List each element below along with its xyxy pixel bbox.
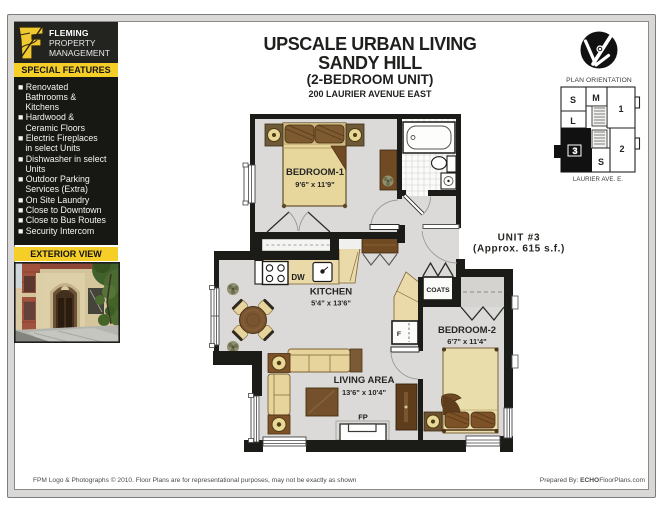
svg-text:PLAN ORIENTATION: PLAN ORIENTATION	[566, 77, 632, 84]
svg-text:F: F	[397, 331, 401, 338]
svg-text:LIVING AREA: LIVING AREA	[334, 375, 395, 386]
svg-text:1: 1	[618, 104, 623, 114]
svg-text:LAURIER AVE. E.: LAURIER AVE. E.	[573, 176, 623, 183]
svg-text:2: 2	[619, 144, 624, 154]
svg-text:S: S	[570, 95, 576, 105]
svg-text:DW: DW	[291, 273, 305, 282]
svg-text:6'7" x 11'4": 6'7" x 11'4"	[447, 337, 487, 346]
svg-text:3: 3	[572, 146, 577, 156]
svg-text:M: M	[592, 93, 600, 103]
svg-text:FP: FP	[358, 413, 368, 422]
svg-text:5'4" x 13'6": 5'4" x 13'6"	[311, 299, 351, 308]
svg-text:9'6" x 11'9": 9'6" x 11'9"	[295, 180, 335, 189]
svg-text:13'6" x 10'4": 13'6" x 10'4"	[342, 388, 386, 397]
svg-text:S: S	[598, 157, 604, 167]
svg-text:BEDROOM-2: BEDROOM-2	[438, 325, 496, 336]
svg-text:(Approx. 615 s.f.): (Approx. 615 s.f.)	[473, 244, 565, 255]
svg-text:KITCHEN: KITCHEN	[310, 287, 352, 298]
svg-text:BEDROOM-1: BEDROOM-1	[286, 167, 345, 178]
svg-text:UNIT #3: UNIT #3	[498, 233, 541, 244]
svg-text:L: L	[570, 116, 576, 126]
svg-text:COATS: COATS	[426, 287, 450, 294]
